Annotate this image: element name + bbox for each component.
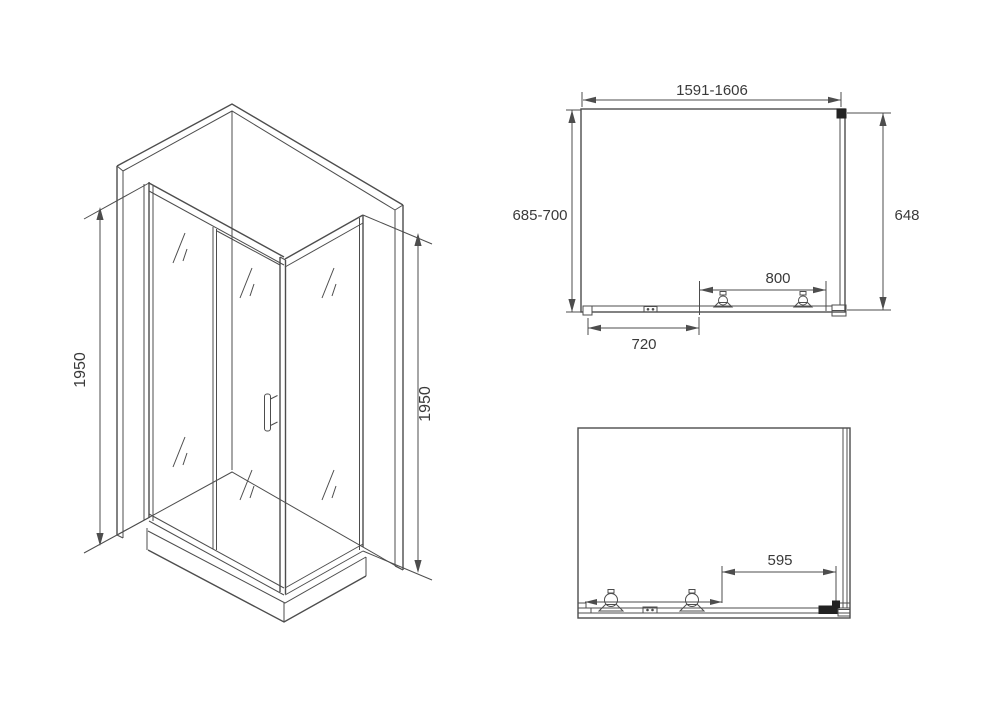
roller-right-plan [794,292,812,308]
technical-drawing-sheet: 1950 1950 [0,0,1000,707]
dimension-width-range: 1591-1606 [582,82,841,107]
dimension-fixed-panel: 720 [588,317,699,353]
plan-view: 1591-1606 685-700 648 800 [512,82,919,353]
glass-shine-marks [173,233,336,500]
dimension-label-depth-range: 685-700 [512,207,567,224]
plan-outline [581,109,846,312]
front-view: 595 [578,428,850,618]
door-handle [265,394,278,431]
dimension-label-height-left: 1950 [72,352,89,388]
dimension-label-fixed-panel: 720 [631,336,656,353]
front-outline [578,428,850,618]
door-face [144,182,286,595]
roller-left-plan [714,292,732,308]
dimension-label-height-right: 1950 [417,386,434,422]
isometric-view: 1950 1950 [72,104,434,622]
drawing-svg: 1950 1950 [0,0,1000,707]
front-bottom-track [578,603,850,616]
dimension-label-track: 800 [765,270,790,287]
dimension-door-opening: 595 [722,552,840,608]
dimension-label-door-opening: 595 [767,552,792,569]
return-panel [285,215,363,595]
shower-tray [147,528,366,622]
back-walls [117,104,403,570]
dimension-label-side-panel: 648 [894,207,919,224]
dimension-label-width-range: 1591-1606 [676,82,748,99]
dimension-depth-range: 685-700 [512,110,583,312]
dimension-track: 800 [700,270,826,311]
dimension-side-panel: 648 [847,113,920,310]
dimension-height-left: 1950 [72,183,150,553]
dimension-height-right: 1950 [363,215,434,580]
